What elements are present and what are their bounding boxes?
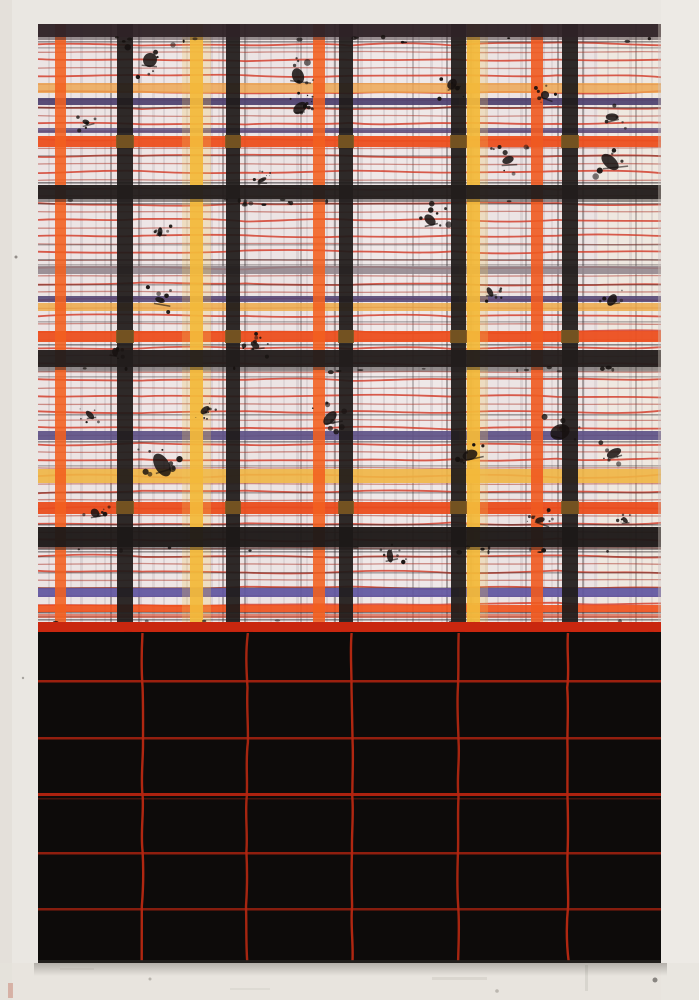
black-grid-section [38,632,661,963]
wall-plaster-mark [432,977,487,980]
wall-speck [149,978,152,981]
painting-artwork [0,0,699,1000]
gallery-photo-of-plaid-painting [0,0,699,1000]
wall-speck [22,677,24,679]
plaid-section [38,24,661,627]
wall-speck [653,978,658,983]
wall-speck [15,256,18,259]
wall-plaster-mark [230,988,270,990]
wall-speck [495,989,499,993]
wall-plaster-mark [8,983,13,998]
painting-shadow [34,963,667,976]
